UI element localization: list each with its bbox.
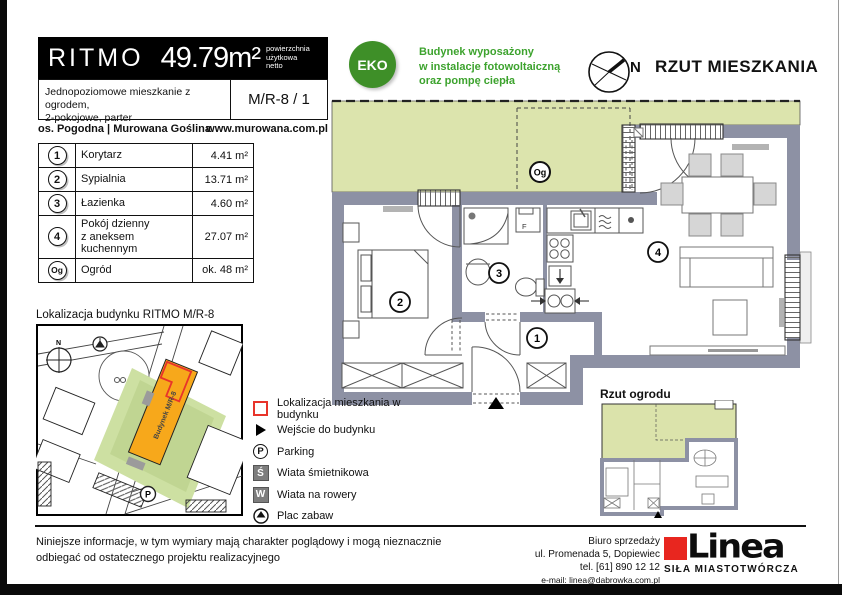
office-email[interactable]: e-mail: linea@dabrowka.com.pl <box>470 574 660 587</box>
toilet-bowl <box>516 278 537 296</box>
bedroom-door-arc <box>425 318 462 355</box>
website-link[interactable]: www.murowana.com.pl <box>190 123 328 135</box>
linea-tagline: SIŁA MIASTOTWÓRCZA <box>664 564 809 575</box>
map-playground-icon <box>93 337 107 351</box>
eco-line: Budynek wyposażony <box>419 45 560 60</box>
room-row: OgOgródok. 48 m² <box>39 258 254 282</box>
bike-shed-icon: W <box>252 487 269 503</box>
bedroom-label: 2 <box>397 297 403 309</box>
room-area: 27.07 m² <box>193 216 254 259</box>
legend-label: Lokalizacja mieszkania w budynku <box>277 397 437 421</box>
kitchen-sink-basin <box>574 214 588 227</box>
page-edge-right <box>838 0 839 584</box>
legend-item: Ś Wiata śmietnikowa <box>252 466 437 481</box>
eco-badge: EKO <box>349 41 396 88</box>
room-row: 2Sypialnia13.71 m² <box>39 168 254 192</box>
apartment-location-icon <box>252 401 269 416</box>
unit-code: M/R-8 / 1 <box>230 80 327 119</box>
utility-box-inner <box>519 208 533 214</box>
north-label: N <box>630 59 641 76</box>
map-parking-letter: P <box>145 490 151 500</box>
chair <box>661 183 683 205</box>
map-legend: Lokalizacja mieszkania w budynku Wejście… <box>252 401 437 524</box>
room-number-badge: 3 <box>48 194 67 213</box>
legend-item: Plac zabaw <box>252 509 437 524</box>
office-line: tel. [61] 890 12 12 <box>470 561 660 574</box>
living-label: 4 <box>655 247 662 259</box>
living-window <box>785 255 800 340</box>
disclaimer-line: odbiegać od ostatecznego projektu realiz… <box>36 550 441 566</box>
trash-shed-icon: Ś <box>252 465 269 481</box>
eco-description: Budynek wyposażony w instalacje fotowolt… <box>419 45 560 89</box>
room-number-badge: 2 <box>48 170 67 189</box>
chair <box>689 154 711 176</box>
office-line: Biuro sprzedaży <box>470 535 660 548</box>
garden-plan <box>598 400 748 522</box>
estate-name: os. Pogodna | Murowana Goślina <box>38 123 211 135</box>
legend-label: Plac zabaw <box>277 510 333 522</box>
hall-label: 1 <box>534 333 540 345</box>
room-name: Ogród <box>76 258 193 282</box>
room-number-cell: 1 <box>39 144 76 168</box>
map-north-label: N <box>56 340 61 347</box>
garden-plan-title: Rzut ogrodu <box>600 387 671 401</box>
location-map: Budynek M/R-8 N P <box>36 324 243 516</box>
window-radiator <box>779 298 784 327</box>
utility-box-label: F <box>522 222 527 231</box>
apartment-area: 49.79m² <box>161 42 260 75</box>
tv <box>708 349 758 352</box>
living-garden-door-glazing <box>640 124 723 139</box>
area-note-line: netto <box>266 61 283 70</box>
bathroom-label: 3 <box>496 268 502 280</box>
linea-logo-square <box>664 537 687 560</box>
bathroom-door-threshold <box>486 314 519 320</box>
bedroom-garden-door-glazing <box>418 190 460 206</box>
chair <box>721 214 743 236</box>
stove <box>547 235 573 262</box>
room-name: Pokój dziennyz aneksem kuchennym <box>76 216 193 259</box>
rooms-table-body: 1Korytarz4.41 m²2Sypialnia13.71 m²3Łazie… <box>39 144 254 283</box>
pillow <box>361 286 371 312</box>
dining-table <box>682 177 753 213</box>
rooms-table: 1Korytarz4.41 m²2Sypialnia13.71 m²3Łazie… <box>38 143 254 283</box>
mini-garden-notch <box>715 400 733 409</box>
footer-divider <box>35 525 806 527</box>
linea-logo-text: Linea <box>687 531 784 563</box>
kitchen-fixtures <box>531 208 643 313</box>
appliance-dot <box>628 217 634 223</box>
legend-item: P Parking <box>252 444 437 459</box>
brand-name: RITMO <box>48 44 144 73</box>
map-parking-icon: P <box>141 487 156 502</box>
room-name: Sypialnia <box>76 168 193 192</box>
room-number-cell: 4 <box>39 216 76 259</box>
pillow <box>361 255 371 281</box>
window-outer-sill <box>800 252 811 343</box>
floor-plan-title: RZUT MIESZKANIA <box>655 57 818 77</box>
eco-line: w instalacje fotowoltaiczną <box>419 60 560 75</box>
room-number-badge: 1 <box>48 146 67 165</box>
parking-icon: P <box>252 444 269 459</box>
description-line: Jednopoziomowe mieszkanie z ogrodem, <box>45 86 190 111</box>
room-number-cell: 2 <box>39 168 76 192</box>
legend-label: Parking <box>277 446 314 458</box>
room-row: 1Korytarz4.41 m² <box>39 144 254 168</box>
room-name: Korytarz <box>76 144 193 168</box>
nightstand <box>343 321 359 338</box>
living-glass-wall <box>622 125 635 192</box>
page-edge-bottom <box>0 584 842 595</box>
apartment-description: Jednopoziomowe mieszkanie z ogrodem, 2-p… <box>39 80 230 119</box>
sales-office-info: Biuro sprzedaży ul. Promenada 5, Dopiewi… <box>470 535 660 587</box>
legend-item: Lokalizacja mieszkania w budynku <box>252 401 437 416</box>
legend-label: Wiata śmietnikowa <box>277 467 369 479</box>
linea-logo: Linea <box>664 530 809 564</box>
disclaimer-line: Niniejsze informacje, w tym wymiary mają… <box>36 534 441 550</box>
garden-label: Og <box>534 168 547 178</box>
chair <box>689 214 711 236</box>
disclaimer: Niniejsze informacje, w tym wymiary mają… <box>36 534 441 566</box>
bathroom-fixtures: F <box>464 208 544 296</box>
bathroom-door-arc <box>485 322 520 355</box>
entrance-door-arc <box>472 347 520 392</box>
office-line: ul. Promenada 5, Dopiewiec <box>470 548 660 561</box>
room-number-cell: Og <box>39 258 76 282</box>
room-number-badge: 4 <box>48 227 67 246</box>
brochure-page: RITMO 49.79m² powierzchnia użytkowa nett… <box>0 0 842 595</box>
location-map-title: Lokalizacja budynku RITMO M/R-8 <box>36 309 214 321</box>
room-name: Łazienka <box>76 192 193 216</box>
chair <box>721 154 743 176</box>
legend-item: Wejście do budynku <box>252 423 437 438</box>
nightstand <box>343 223 359 242</box>
floor-plan: F <box>318 95 812 435</box>
legend-label: Wiata na rowery <box>277 489 356 501</box>
compass-icon <box>584 46 636 98</box>
sofa <box>680 247 773 287</box>
room-area: ok. 48 m² <box>193 258 254 282</box>
room-area: 4.41 m² <box>193 144 254 168</box>
room-number-badge: Og <box>48 261 67 280</box>
page-edge-left <box>0 0 7 595</box>
bedroom-radiator <box>383 206 413 212</box>
shower-head <box>469 213 476 220</box>
coffee-table <box>713 300 747 335</box>
living-radiator <box>732 144 769 150</box>
header-bar: RITMO 49.79m² powierzchnia użytkowa nett… <box>38 37 328 79</box>
chair <box>754 183 776 205</box>
area-note: powierzchnia użytkowa netto <box>266 45 318 71</box>
room-number-cell: 3 <box>39 192 76 216</box>
entrance-icon <box>252 424 269 436</box>
room-area: 13.71 m² <box>193 168 254 192</box>
room-row: 3Łazienka4.60 m² <box>39 192 254 216</box>
playground-icon <box>252 508 269 524</box>
legend-label: Wejście do budynku <box>277 424 375 436</box>
toilet-tank <box>536 279 544 296</box>
bedroom-door-threshold <box>452 320 460 353</box>
legend-item: W Wiata na rowery <box>252 487 437 502</box>
room-area: 4.60 m² <box>193 192 254 216</box>
room-row: 4Pokój dziennyz aneksem kuchennym27.07 m… <box>39 216 254 259</box>
eco-line: oraz pompę ciepła <box>419 74 560 89</box>
washbasin <box>466 259 490 285</box>
apartment-description-box: Jednopoziomowe mieszkanie z ogrodem, 2-p… <box>38 79 328 120</box>
